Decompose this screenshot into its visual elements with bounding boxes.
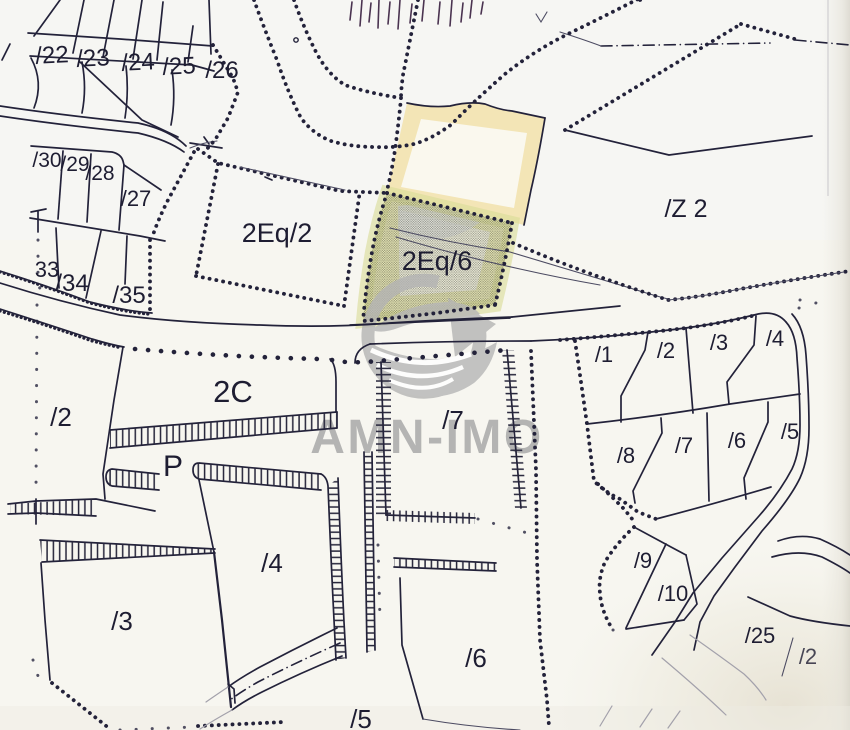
svg-text:2Eq/6: 2Eq/6 bbox=[402, 246, 473, 276]
svg-text:/3: /3 bbox=[111, 606, 133, 636]
svg-text:/24: /24 bbox=[121, 48, 156, 77]
svg-text:2Eq/2: 2Eq/2 bbox=[242, 218, 313, 248]
svg-text:/5: /5 bbox=[350, 704, 372, 730]
svg-text:/5: /5 bbox=[781, 419, 799, 444]
svg-text:/23: /23 bbox=[76, 44, 111, 73]
svg-text:/2: /2 bbox=[50, 402, 72, 432]
svg-text:/27: /27 bbox=[121, 186, 152, 211]
svg-text:/35: /35 bbox=[112, 282, 145, 309]
svg-text:/3: /3 bbox=[710, 330, 728, 355]
svg-text:P: P bbox=[163, 450, 183, 483]
svg-text:/2: /2 bbox=[799, 644, 817, 669]
svg-text:/22: /22 bbox=[35, 41, 70, 70]
svg-text:/6: /6 bbox=[465, 643, 487, 673]
svg-text:/9: /9 bbox=[634, 548, 652, 573]
svg-text:/2: /2 bbox=[657, 338, 675, 363]
svg-text:/25: /25 bbox=[162, 52, 197, 81]
svg-text:/Z 2: /Z 2 bbox=[664, 195, 707, 223]
svg-text:/6: /6 bbox=[728, 428, 746, 453]
svg-text:/7: /7 bbox=[675, 433, 693, 458]
svg-text:/4: /4 bbox=[261, 548, 283, 578]
svg-text:/28: /28 bbox=[85, 162, 114, 185]
svg-text:/34: /34 bbox=[55, 270, 88, 297]
svg-text:/1: /1 bbox=[595, 342, 613, 367]
svg-text:/26: /26 bbox=[205, 57, 238, 84]
svg-text:/25: /25 bbox=[745, 623, 776, 648]
svg-text:2C: 2C bbox=[213, 374, 253, 409]
svg-text:/30: /30 bbox=[32, 149, 61, 172]
svg-text:/7: /7 bbox=[442, 405, 464, 435]
svg-text:/8: /8 bbox=[617, 443, 635, 468]
svg-text:/10: /10 bbox=[658, 581, 689, 606]
svg-text:/4: /4 bbox=[766, 326, 784, 351]
